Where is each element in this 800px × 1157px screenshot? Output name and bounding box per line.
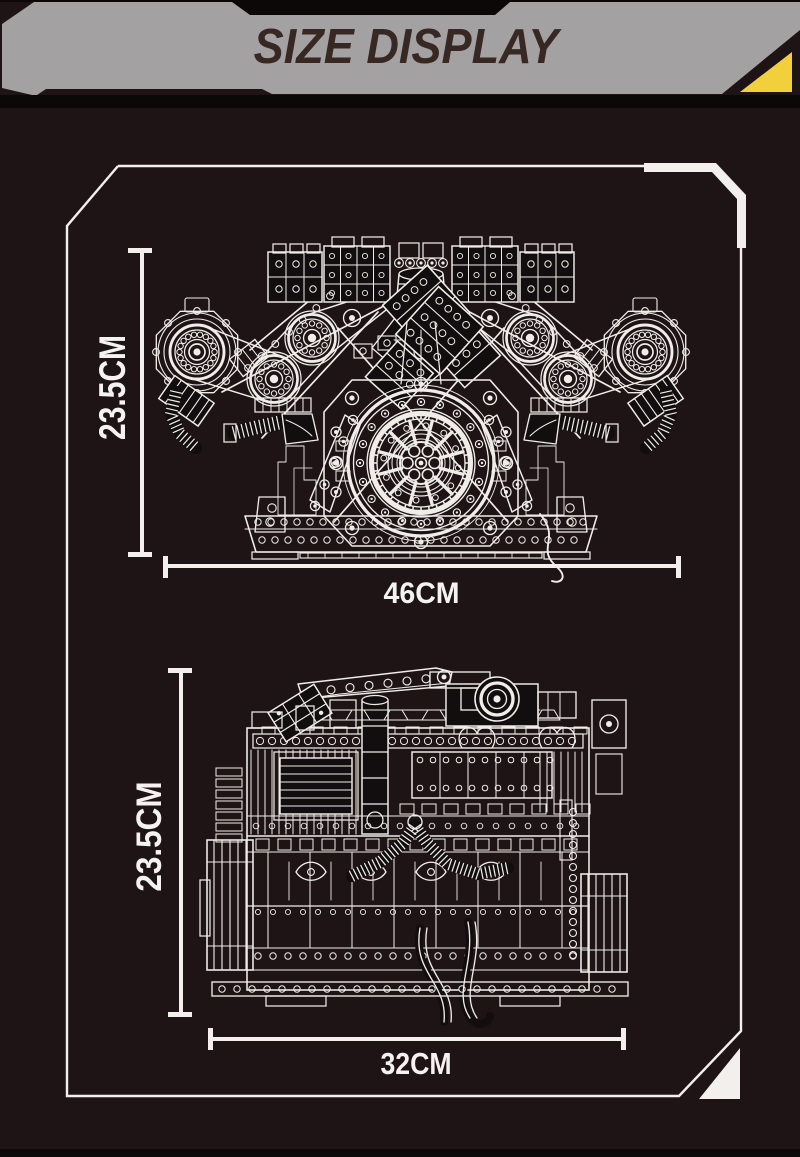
svg-text:32CM: 32CM xyxy=(380,1047,451,1081)
svg-text:23.5CM: 23.5CM xyxy=(93,335,134,440)
svg-text:46CM: 46CM xyxy=(383,577,459,610)
svg-text:SIZE DISPLAY: SIZE DISPLAY xyxy=(254,18,562,73)
svg-text:23.5CM: 23.5CM xyxy=(131,781,170,891)
